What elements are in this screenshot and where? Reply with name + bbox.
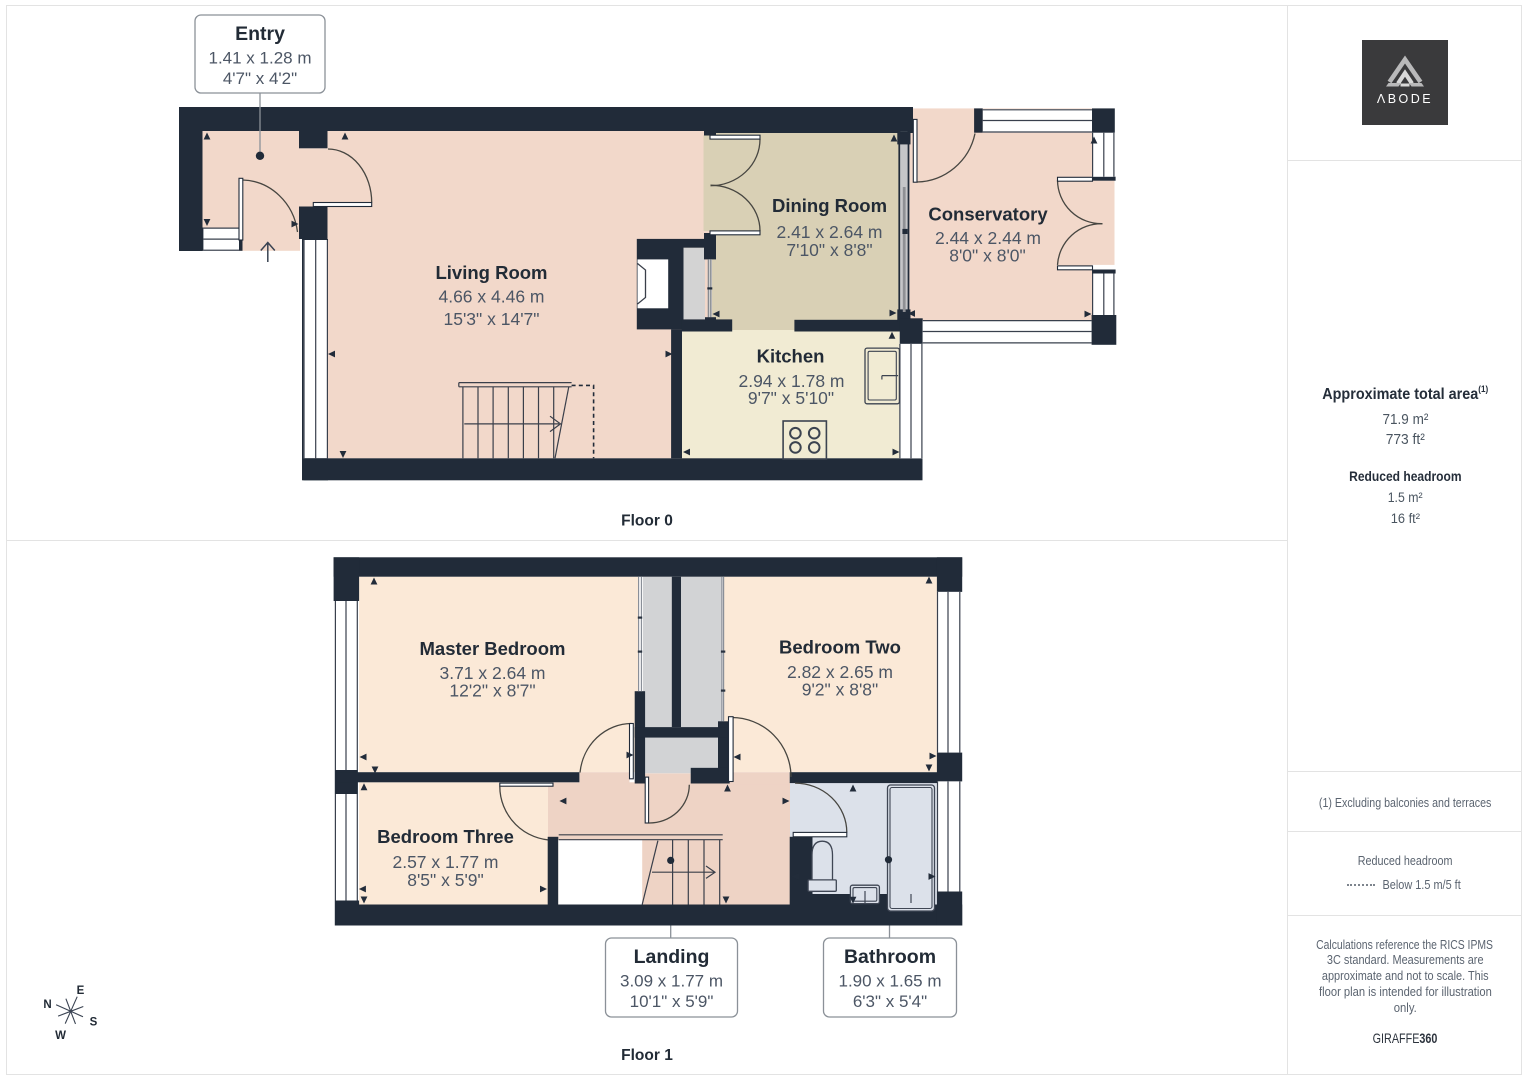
svg-text:4'7" x 4'2": 4'7" x 4'2"	[223, 69, 297, 88]
svg-text:Kitchen: Kitchen	[757, 346, 825, 367]
svg-text:2.41 x 2.64 m: 2.41 x 2.64 m	[776, 222, 882, 242]
svg-text:Floor 0: Floor 0	[621, 513, 673, 530]
svg-text:12'2" x 8'7": 12'2" x 8'7"	[449, 681, 535, 701]
svg-text:3.09 x 1.77 m: 3.09 x 1.77 m	[620, 972, 723, 991]
svg-text:Living Room: Living Room	[435, 262, 547, 283]
svg-text:ΛBODE: ΛBODE	[1376, 92, 1432, 106]
svg-text:8'0" x 8'0": 8'0" x 8'0"	[949, 246, 1026, 266]
svg-text:N: N	[43, 999, 51, 1011]
svg-text:4.66 x 4.46 m: 4.66 x 4.46 m	[438, 287, 544, 307]
svg-text:1.41 x 1.28 m: 1.41 x 1.28 m	[208, 49, 311, 68]
svg-text:E: E	[77, 985, 85, 997]
svg-text:Landing: Landing	[634, 946, 710, 968]
svg-text:Conservatory: Conservatory	[928, 204, 1048, 225]
svg-text:9'7" x 5'10": 9'7" x 5'10"	[748, 388, 834, 408]
svg-text:2.57 x 1.77 m: 2.57 x 1.77 m	[392, 852, 498, 872]
svg-text:Master Bedroom: Master Bedroom	[420, 638, 566, 659]
svg-text:10'1" x 5'9": 10'1" x 5'9"	[630, 992, 714, 1011]
svg-text:9'2" x 8'8": 9'2" x 8'8"	[802, 680, 879, 700]
svg-text:Floor 1: Floor 1	[621, 1047, 673, 1064]
svg-text:7'10" x 8'8": 7'10" x 8'8"	[786, 240, 872, 260]
svg-text:Bedroom Two: Bedroom Two	[779, 637, 901, 658]
svg-text:Bathroom: Bathroom	[844, 946, 936, 968]
svg-text:6'3" x 5'4": 6'3" x 5'4"	[853, 992, 927, 1011]
svg-text:Entry: Entry	[235, 23, 285, 45]
svg-text:Dining Room: Dining Room	[772, 195, 887, 216]
svg-text:S: S	[90, 1017, 98, 1029]
svg-text:1.90 x 1.65 m: 1.90 x 1.65 m	[838, 972, 941, 991]
svg-text:W: W	[55, 1030, 66, 1042]
svg-text:15'3" x 14'7": 15'3" x 14'7"	[444, 309, 540, 329]
svg-text:Bedroom Three: Bedroom Three	[377, 826, 514, 847]
svg-text:8'5" x 5'9": 8'5" x 5'9"	[407, 870, 484, 890]
